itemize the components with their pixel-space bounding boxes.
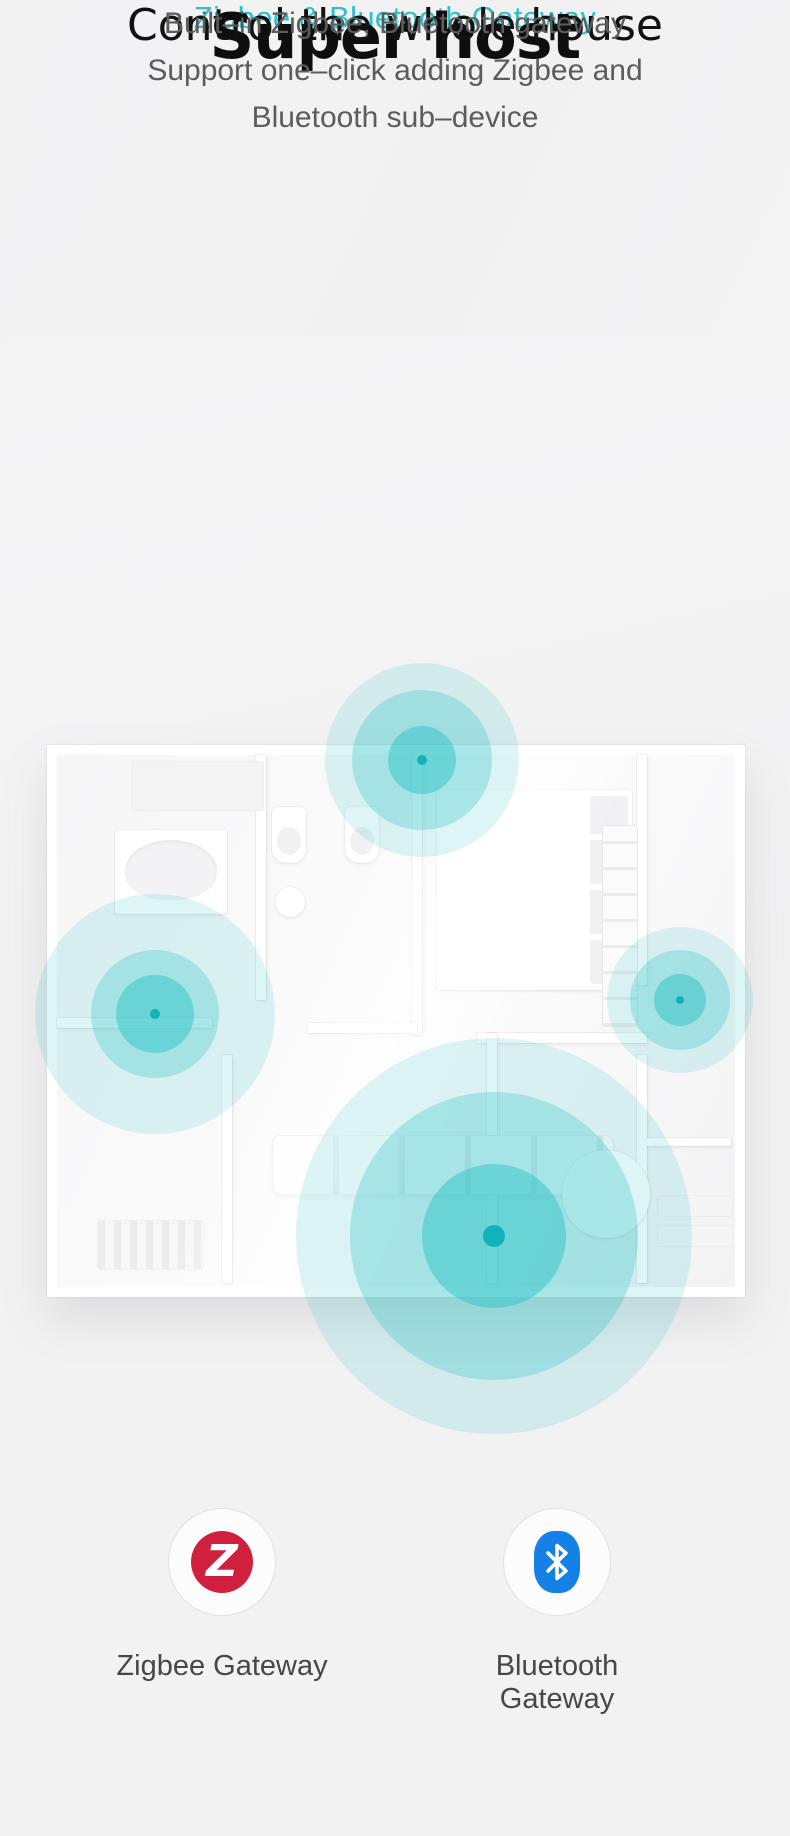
sofa (272, 1135, 614, 1195)
wall (637, 1055, 647, 1283)
right-room-signal-ripple-dot (676, 996, 684, 1004)
right-room-signal-ripple-ring (654, 974, 706, 1026)
living-room-signal-ripple-ring (422, 1164, 566, 1308)
zigbee-badge: Z (168, 1508, 276, 1616)
wall (307, 1023, 417, 1033)
wall (222, 1055, 232, 1283)
feature-bluetooth: Bluetooth Gateway (437, 1508, 677, 1716)
zigbee-logo-icon: Z (191, 1531, 253, 1593)
living-room-signal-ripple-dot (483, 1225, 505, 1247)
doormat (97, 1220, 204, 1270)
description-line-3: Bluetooth sub–device (0, 94, 790, 141)
kitchen-counter (657, 1225, 733, 1247)
left-room-signal-ripple-ring (116, 975, 194, 1053)
description: Built–in Zigbee, Bluetooth gateway Suppo… (0, 0, 790, 141)
bluetooth-rune-icon (540, 1540, 574, 1584)
living-room-signal-ripple-ring (296, 1038, 692, 1434)
right-room-signal-ripple-ring (630, 950, 730, 1050)
kitchen-counter (657, 1195, 733, 1217)
bluetooth-badge (503, 1508, 611, 1616)
product-promo-page: { "page": { "background": "#f2f2f3" }, "… (0, 0, 790, 1836)
feature-zigbee: Z Zigbee Gateway (102, 1508, 342, 1683)
wall (487, 1033, 497, 1283)
wall (647, 1138, 731, 1146)
left-room-signal-ripple-dot (150, 1009, 160, 1019)
description-line-1: Built–in Zigbee, Bluetooth gateway (0, 0, 790, 47)
dining-table (562, 1150, 650, 1238)
bluetooth-logo-icon (534, 1531, 580, 1593)
zigbee-gateway-label: Zigbee Gateway (102, 1650, 342, 1683)
wall (57, 1018, 212, 1028)
left-room-signal-ripple-ring (91, 950, 219, 1078)
living-room-signal-ripple-ring (350, 1092, 638, 1380)
wall (477, 1033, 647, 1043)
description-line-2: Support one–click adding Zigbee and (0, 47, 790, 94)
bluetooth-gateway-label: Bluetooth Gateway (437, 1650, 677, 1716)
